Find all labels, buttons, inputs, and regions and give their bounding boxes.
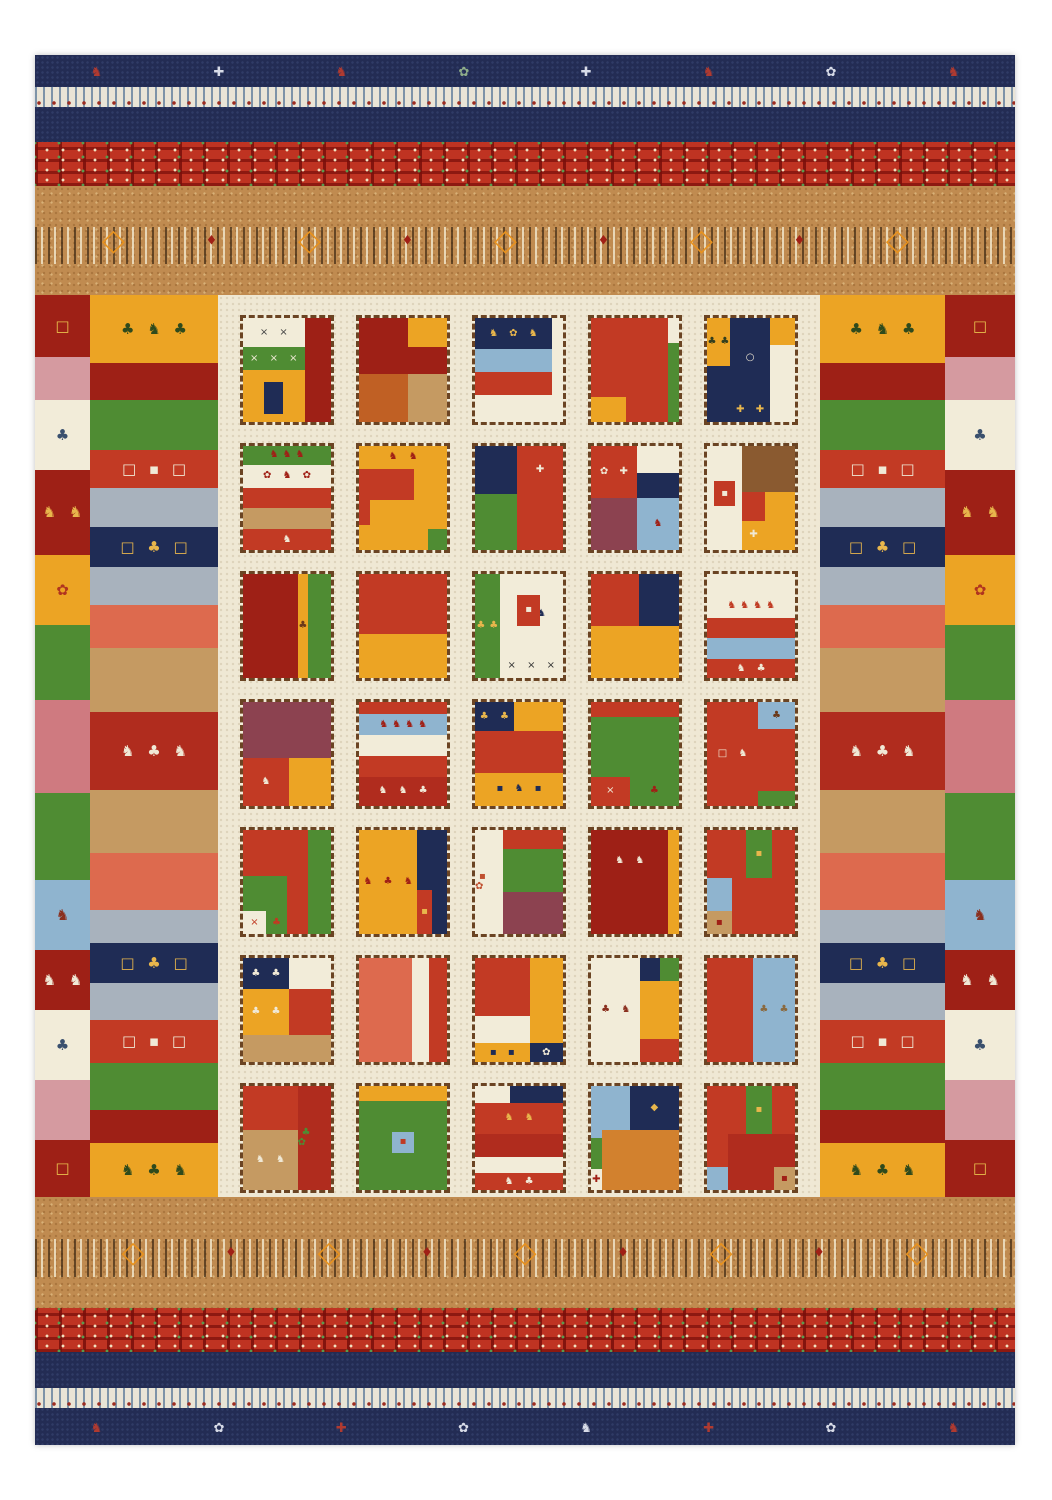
right-inner-stripe-10: ♞ ♣ ♞: [820, 712, 945, 790]
rug-block: ▪: [746, 830, 772, 878]
rug-block: [289, 758, 331, 806]
patch-panel-r2c3: ✚: [472, 443, 566, 553]
rug-block: ♞♞♞: [243, 446, 331, 465]
motif-glyphs: □ ♞: [707, 702, 758, 806]
right-inner-stripe-19: ♞ ♣ ♞: [820, 1143, 945, 1197]
motif-glyphs: ▪ ✿: [475, 830, 503, 934]
right-inner-stripe-18: [820, 1110, 945, 1143]
rug-block: [707, 638, 795, 659]
motif-glyphs: ♣ ✿: [298, 1086, 331, 1190]
rug-block: [475, 372, 552, 395]
rug-block: × ×: [243, 318, 305, 347]
motif-glyphs: ♞ ♞: [35, 470, 90, 555]
rug-block: ♣ ✿: [298, 1086, 331, 1190]
patch-panel-r7c4: ◆✚: [588, 1083, 682, 1193]
bottom-tassel-stripe: [35, 1388, 1015, 1408]
rug-block: [359, 756, 447, 777]
rug-block: [475, 494, 517, 550]
rug-block: [359, 574, 447, 634]
left-outer-stripe-1: □: [35, 295, 90, 357]
motif-glyphs: ♞ ♣ ♞: [820, 1143, 945, 1197]
patch-panel-r5c3: ▪ ✿: [472, 827, 566, 937]
small-diamond-motif: ♦: [402, 234, 414, 247]
rug-block: ×: [243, 911, 266, 934]
motif-glyphs: □ ♣ □: [90, 527, 218, 567]
patch-panel-r6c1: ♣ ♣♣ ♣: [240, 955, 334, 1065]
rug-block: [243, 876, 287, 911]
border-motif: ✿: [458, 66, 469, 79]
rug-block: [668, 318, 679, 343]
top-navy-motif-row: ♞✚♞✿✚♞✿♞: [35, 61, 1015, 83]
patch-panel-r1c5: ♣♣○✚ ✚: [704, 315, 798, 425]
rug-block: [637, 446, 679, 473]
left-outer-stripe-9: ♞: [35, 880, 90, 950]
motif-glyphs: ♣: [35, 1010, 90, 1080]
motif-glyphs: ×: [591, 777, 630, 806]
rug-middle: □♣♞ ♞✿♞♞ ♞♣□ ♣ ♞ ♣□ ▪ □□ ♣ □♞ ♣ ♞□ ♣ □□ …: [35, 295, 1015, 1197]
rug-block: [742, 492, 765, 521]
left-outer-stripe-10: ♞ ♞: [35, 950, 90, 1010]
rug-block: [668, 374, 679, 422]
bottom-red-border: [35, 1308, 1015, 1352]
rug-block: [503, 849, 563, 893]
patch-panel-r6c2: [356, 955, 450, 1065]
rug-block: [639, 574, 679, 626]
rug-block: ✚: [591, 1169, 602, 1190]
motif-glyphs: □: [945, 1140, 1015, 1197]
rug-block: [668, 343, 679, 374]
small-diamond-motif: ♦: [421, 1246, 433, 1259]
diamond-medallion: ◇: [121, 1238, 144, 1268]
motif-glyphs: ♞ ♞ ♣: [359, 777, 447, 806]
motif-glyphs: □ ♣ □: [820, 527, 945, 567]
motif-glyphs: □ ♣ □: [90, 943, 218, 983]
right-inner-stripe-17: [820, 1063, 945, 1110]
top-navy-border: ♞✚♞✿✚♞✿♞: [35, 55, 1015, 142]
rug-block: × × ×: [243, 347, 305, 370]
left-inner-stripe-1: ♣ ♞ ♣: [90, 295, 218, 363]
rug-block: [475, 731, 526, 773]
left-inner-stripe-12: [90, 853, 218, 910]
rug-block: [772, 1086, 795, 1134]
right-inner-stripe-6: □ ♣ □: [820, 527, 945, 567]
patch-panel-r3c3: ♣♣♞ ♞▪× × ×: [472, 571, 566, 681]
rug-block: ♣: [630, 777, 679, 806]
motif-glyphs: ♣ ♣: [243, 989, 289, 1035]
rug-block: [243, 1035, 331, 1062]
rug-block: ▪: [392, 1132, 413, 1153]
rug-block: [475, 395, 552, 422]
left-inner-stripe-2: [90, 363, 218, 400]
left-inner-stripe-15: [90, 983, 218, 1020]
rug-block: ♣: [758, 702, 795, 729]
rug-block: [359, 702, 447, 714]
motif-glyphs: ✿ ♞ ✿: [243, 465, 331, 488]
left-inner-stripe-14: □ ♣ □: [90, 943, 218, 983]
rug-block: [626, 397, 668, 422]
right-inner-stripe-16: □ ▪ □: [820, 1020, 945, 1063]
motif-glyphs: ♣ ♣: [753, 958, 795, 1062]
rug-block: [707, 878, 732, 911]
rug-block: ♞ ♣: [707, 659, 795, 678]
right-inner-stripe-12: [820, 853, 945, 910]
patch-panel-r5c1: ×♣: [240, 827, 334, 937]
patch-panel-r7c1: ♣ ✿♞ ♞: [240, 1083, 334, 1193]
motif-glyphs: ♣: [630, 777, 679, 806]
rug-block: ✚: [517, 446, 563, 494]
left-outer-stripe-11: ♣: [35, 1010, 90, 1080]
left-inner-stripe-19: ♞ ♣ ♞: [90, 1143, 218, 1197]
patch-panel-r5c4: ♞ ♞: [588, 827, 682, 937]
rug-block: [758, 729, 795, 791]
right-inner-stripe-14: □ ♣ □: [820, 943, 945, 983]
rug-block: [707, 618, 795, 639]
border-motif: ♞: [91, 66, 103, 79]
motif-glyphs: ✚ ✚: [730, 397, 770, 422]
right-inner-stripe-11: [820, 790, 945, 853]
motif-glyphs: ♣ ♣: [243, 958, 289, 989]
right-inner-stripe-13: [820, 910, 945, 943]
rug-block: [591, 626, 679, 678]
right-inner-stripe-3: [820, 400, 945, 450]
motif-glyphs: ♞ ♞: [475, 1103, 563, 1134]
right-outer-stripe-13: □: [945, 1140, 1015, 1197]
border-motif: ✚: [581, 66, 592, 79]
small-diamond-motif: ♦: [813, 1246, 825, 1259]
rug-block: [503, 892, 563, 934]
motif-glyphs: ✚: [742, 521, 765, 550]
rug-block: [475, 349, 552, 372]
rug-block: ✿ ✚: [591, 446, 637, 498]
left-outer-stripe-8: [35, 793, 90, 880]
diamond-medallion: ◇: [317, 1238, 340, 1268]
rug-block: [772, 830, 795, 878]
motif-glyphs: ▪: [774, 1167, 795, 1190]
top-tan-tick-row: [35, 227, 1015, 264]
motif-glyphs: ♣ ♞ ♣: [820, 295, 945, 363]
border-motif: ✚: [213, 66, 224, 79]
rug-block: [591, 574, 639, 626]
left-inner-stripe-9: [90, 648, 218, 712]
rug-block: [429, 958, 447, 1062]
patch-panel-r3c5: ♞♞♞♞♞ ♣: [704, 571, 798, 681]
motif-glyphs: ♞ ♞: [945, 950, 1015, 1010]
motif-glyphs: ✿: [945, 555, 1015, 625]
rug-block: [407, 634, 447, 678]
rug-block: [503, 830, 563, 849]
diamond-medallion: ◇: [513, 1238, 536, 1268]
rug-block: [412, 958, 430, 1062]
right-outer-stripe-3: ♣: [945, 400, 1015, 470]
patch-panel-r4c4: ×♣: [588, 699, 682, 809]
right-inner-stripe-2: [820, 363, 945, 400]
patch-panel-r5c5: ▪▪: [704, 827, 798, 937]
motif-glyphs: ♞ ♣: [707, 659, 795, 678]
right-outer-stripe-11: ♣: [945, 1010, 1015, 1080]
gabbeh-rug: ♞✚♞✿✚♞✿♞ ◇◇◇◇◇♦♦♦♦ □♣♞ ♞✿♞♞ ♞♣□ ♣ ♞ ♣□ ▪…: [35, 55, 1015, 1445]
rug-block: ♞: [243, 529, 331, 550]
rug-block: [591, 717, 679, 777]
rug-block: ○: [730, 318, 770, 397]
border-motif: ♞: [580, 1422, 592, 1435]
left-outer-stripe-5: ✿: [35, 555, 90, 625]
left-inner-stripe-5: [90, 488, 218, 527]
left-outer-stripe-4: ♞ ♞: [35, 470, 90, 555]
left-inner-stripe-column: ♣ ♞ ♣□ ▪ □□ ♣ □♞ ♣ ♞□ ♣ □□ ▪ □♞ ♣ ♞: [90, 295, 218, 1197]
right-outer-stripe-6: [945, 625, 1015, 700]
rug-block: ♞ ♞: [591, 847, 668, 876]
right-outer-stripe-8: [945, 793, 1015, 880]
rug-block: [243, 488, 331, 509]
rug-block: ♞ ♞: [359, 446, 447, 469]
motif-glyphs: ♞ ♣ ♞: [90, 1143, 218, 1197]
motif-glyphs: ♞: [637, 498, 679, 550]
rug-block: ✿: [530, 1043, 563, 1062]
rug-block: ♣ ♣: [243, 989, 289, 1035]
border-motif: ✿: [825, 1422, 836, 1435]
rug-block: ♞ ♞: [475, 1103, 563, 1134]
motif-glyphs: ×: [243, 911, 266, 934]
patch-panel-r1c1: × ×× × ×: [240, 315, 334, 425]
left-outer-stripe-6: [35, 625, 90, 700]
rug-block: [359, 469, 414, 500]
left-outer-stripe-13: □: [35, 1140, 90, 1197]
left-inner-stripe-13: [90, 910, 218, 943]
rug-block: [305, 318, 331, 422]
patch-panel-r2c2: ♞ ♞: [356, 443, 450, 553]
rug-block: ▪: [714, 481, 735, 506]
motif-glyphs: ▪: [746, 830, 772, 878]
rug-block: [591, 903, 668, 934]
border-motif: ♞: [703, 66, 715, 79]
rug-block: [640, 1039, 679, 1062]
rug-block: [243, 830, 287, 876]
motif-glyphs: ▪: [392, 1132, 413, 1153]
patch-panel-r6c4: ♣ ♞: [588, 955, 682, 1065]
motif-glyphs: ♣: [298, 574, 309, 678]
rug-block: □ ♞: [707, 702, 758, 806]
rug-block: [475, 1157, 563, 1174]
rug-block: ♣♣: [475, 574, 500, 678]
motif-glyphs: ▪: [517, 595, 540, 626]
motif-glyphs: ▪: [707, 911, 732, 934]
rug-block: [707, 366, 730, 422]
rug-block: [758, 791, 795, 806]
right-inner-stripe-5: [820, 488, 945, 527]
rug-block: [707, 1167, 728, 1190]
border-motif: ✚: [336, 1422, 347, 1435]
patch-panel-r4c1: ♞: [240, 699, 334, 809]
rug-block: [514, 702, 563, 731]
rug-block: [530, 1016, 563, 1043]
rug-block: [707, 1004, 753, 1062]
diamond-medallion: ◇: [709, 1238, 732, 1268]
patch-panel-r4c2: ♞♞♞♞♞ ♞ ♣: [356, 699, 450, 809]
diamond-medallion: ◇: [102, 226, 125, 256]
right-outer-stripe-9: ♞: [945, 880, 1015, 950]
rug-block: [591, 498, 637, 550]
rug-block: ♣: [298, 574, 309, 678]
rug-block: ♞ ♞ ♣: [359, 777, 447, 806]
rug-block: [510, 1086, 563, 1103]
rug-block: [770, 345, 795, 422]
diamond-medallion: ◇: [905, 1238, 928, 1268]
patch-panel-r7c2: ▪: [356, 1083, 450, 1193]
motif-glyphs: ♞ ♣ ♞: [820, 712, 945, 790]
rug-block: [742, 446, 795, 492]
left-inner-stripe-18: [90, 1110, 218, 1143]
rug-block: ✚: [742, 521, 765, 550]
border-motif: ✿: [458, 1422, 469, 1435]
rug-block: [770, 318, 795, 345]
rug-block: [287, 830, 308, 934]
rug-block: [526, 731, 563, 773]
motif-glyphs: □ ▪ □: [90, 450, 218, 488]
patch-panel-r3c1: ♣: [240, 571, 334, 681]
motif-glyphs: ♣: [758, 702, 795, 729]
rug-block: ♞: [243, 758, 289, 806]
border-motif: ✿: [214, 1422, 225, 1435]
rug-block: [428, 529, 447, 550]
rug-block: [765, 492, 795, 550]
rug-block: [668, 830, 679, 934]
motif-glyphs: ✚: [517, 446, 563, 494]
patch-panel-r3c2: [356, 571, 450, 681]
motif-glyphs: ✿: [35, 555, 90, 625]
patch-panel-r1c4: [588, 315, 682, 425]
rug-block: ♣ ♞: [591, 958, 640, 1062]
bottom-navy-motif-row: ♞✿✚✿♞✚✿♞: [35, 1417, 1015, 1439]
left-inner-stripe-10: ♞ ♣ ♞: [90, 712, 218, 790]
motif-glyphs: ♣ ♞: [591, 958, 640, 1062]
rug-block: ▪: [417, 890, 432, 934]
rug-block: ♞ ♣ ♞: [359, 830, 417, 934]
small-diamond-motif: ♦: [206, 234, 218, 247]
right-inner-stripe-15: [820, 983, 945, 1020]
diamond-medallion: ◇: [494, 226, 517, 256]
left-outer-stripe-7: [35, 700, 90, 793]
motif-glyphs: ♣: [35, 400, 90, 470]
motif-glyphs: ♞ ♣: [475, 1173, 563, 1190]
motif-glyphs: ▪ ▪: [475, 1043, 530, 1062]
rug-block: [660, 958, 679, 981]
rug-block: [243, 1086, 298, 1130]
motif-glyphs: ♞ ♞: [945, 470, 1015, 555]
patch-panel-r6c5: ♣ ♣: [704, 955, 798, 1065]
top-tan-border: ◇◇◇◇◇♦♦♦♦: [35, 186, 1015, 295]
patch-panel-r7c3: ♞ ♞♞ ♣: [472, 1083, 566, 1193]
rug-block: [732, 878, 795, 934]
motif-glyphs: □: [35, 1140, 90, 1197]
rug-block: [517, 494, 563, 550]
rug-block: [640, 958, 659, 981]
rug-block: [289, 989, 331, 1035]
right-outer-stripe-2: [945, 357, 1015, 400]
motif-glyphs: ♣: [266, 911, 287, 934]
motif-glyphs: × × ×: [243, 347, 305, 370]
right-inner-stripe-8: [820, 605, 945, 648]
rug-block: [637, 473, 679, 498]
rug-block: ♣ ♣: [243, 958, 289, 989]
border-motif: ♞: [91, 1422, 103, 1435]
motif-glyphs: ✿: [530, 1043, 563, 1062]
right-outer-stripe-7: [945, 700, 1015, 793]
motif-glyphs: ○: [730, 318, 770, 397]
motif-glyphs: □: [945, 295, 1015, 357]
motif-glyphs: ♣♣: [475, 574, 500, 678]
rug-block: [408, 347, 447, 374]
motif-glyphs: ♞ ♣ ♞: [359, 830, 417, 934]
diamond-medallion: ◇: [886, 226, 909, 256]
left-outer-stripe-3: ♣: [35, 400, 90, 470]
motif-glyphs: □ ▪ □: [820, 1020, 945, 1063]
rug-block: ♞♞♞♞: [359, 714, 447, 735]
rug-block: ▪: [517, 595, 540, 626]
rug-block: [308, 574, 331, 678]
rug-block: ▪ ▪: [475, 1043, 530, 1062]
patch-panel-r2c1: ♞♞♞✿ ♞ ✿♞: [240, 443, 334, 553]
left-inner-stripe-17: [90, 1063, 218, 1110]
small-diamond-motif: ♦: [225, 1246, 237, 1259]
left-inner-stripe-4: □ ▪ □: [90, 450, 218, 488]
motif-glyphs: ♞♞♞♞: [707, 595, 795, 618]
small-diamond-motif: ♦: [598, 234, 610, 247]
rug-block: [359, 500, 370, 525]
rug-block: [475, 446, 517, 494]
patch-panel-r3c4: [588, 571, 682, 681]
rug-block: [591, 702, 679, 717]
rug-block: ♣♣: [707, 318, 730, 366]
diamond-medallion: ◇: [690, 226, 713, 256]
rug-block: ◆: [630, 1086, 679, 1130]
rug-block: [359, 634, 407, 678]
motif-glyphs: ▪: [714, 481, 735, 506]
left-outer-stripe-12: [35, 1080, 90, 1140]
motif-glyphs: ♣: [945, 400, 1015, 470]
motif-glyphs: ▪ ♞ ▪: [475, 773, 563, 806]
patch-panel-r1c2: [356, 315, 450, 425]
motif-glyphs: ♣♣: [707, 318, 730, 366]
motif-glyphs: □ ♣ □: [820, 943, 945, 983]
right-inner-stripe-column: ♣ ♞ ♣□ ▪ □□ ♣ □♞ ♣ ♞□ ♣ □□ ▪ □♞ ♣ ♞: [820, 295, 945, 1197]
left-inner-stripe-7: [90, 567, 218, 605]
rug-block: [475, 1086, 510, 1103]
motif-glyphs: ♞: [35, 880, 90, 950]
rug-block: [359, 374, 408, 422]
bottom-navy-border: ♞✿✚✿♞✚✿♞: [35, 1352, 1015, 1445]
rug-block: [707, 958, 753, 1004]
rug-block: [243, 508, 331, 529]
rug-block: [640, 981, 679, 1039]
rug-block: [475, 1134, 563, 1157]
motif-glyphs: ◆: [630, 1086, 679, 1130]
rug-block: ♣ ♣: [753, 958, 795, 1062]
motif-glyphs: ♞ ♞: [35, 950, 90, 1010]
patch-panel-r2c5: ♣▪✚: [704, 443, 798, 553]
small-diamond-motif: ♦: [794, 234, 806, 247]
rug-block: [359, 1086, 447, 1101]
motif-glyphs: ♞♞♞: [243, 446, 331, 465]
rug-block: [475, 1016, 530, 1043]
motif-glyphs: □ ▪ □: [820, 450, 945, 488]
rug-block: [707, 1134, 728, 1167]
left-outer-stripe-column: □♣♞ ♞✿♞♞ ♞♣□: [35, 295, 90, 1197]
patch-panel-r1c3: ♞ ✿ ♞: [472, 315, 566, 425]
rug-block: ×: [591, 777, 630, 806]
right-outer-stripe-4: ♞ ♞: [945, 470, 1015, 555]
right-outer-stripe-1: □: [945, 295, 1015, 357]
rug-block: [591, 397, 626, 422]
